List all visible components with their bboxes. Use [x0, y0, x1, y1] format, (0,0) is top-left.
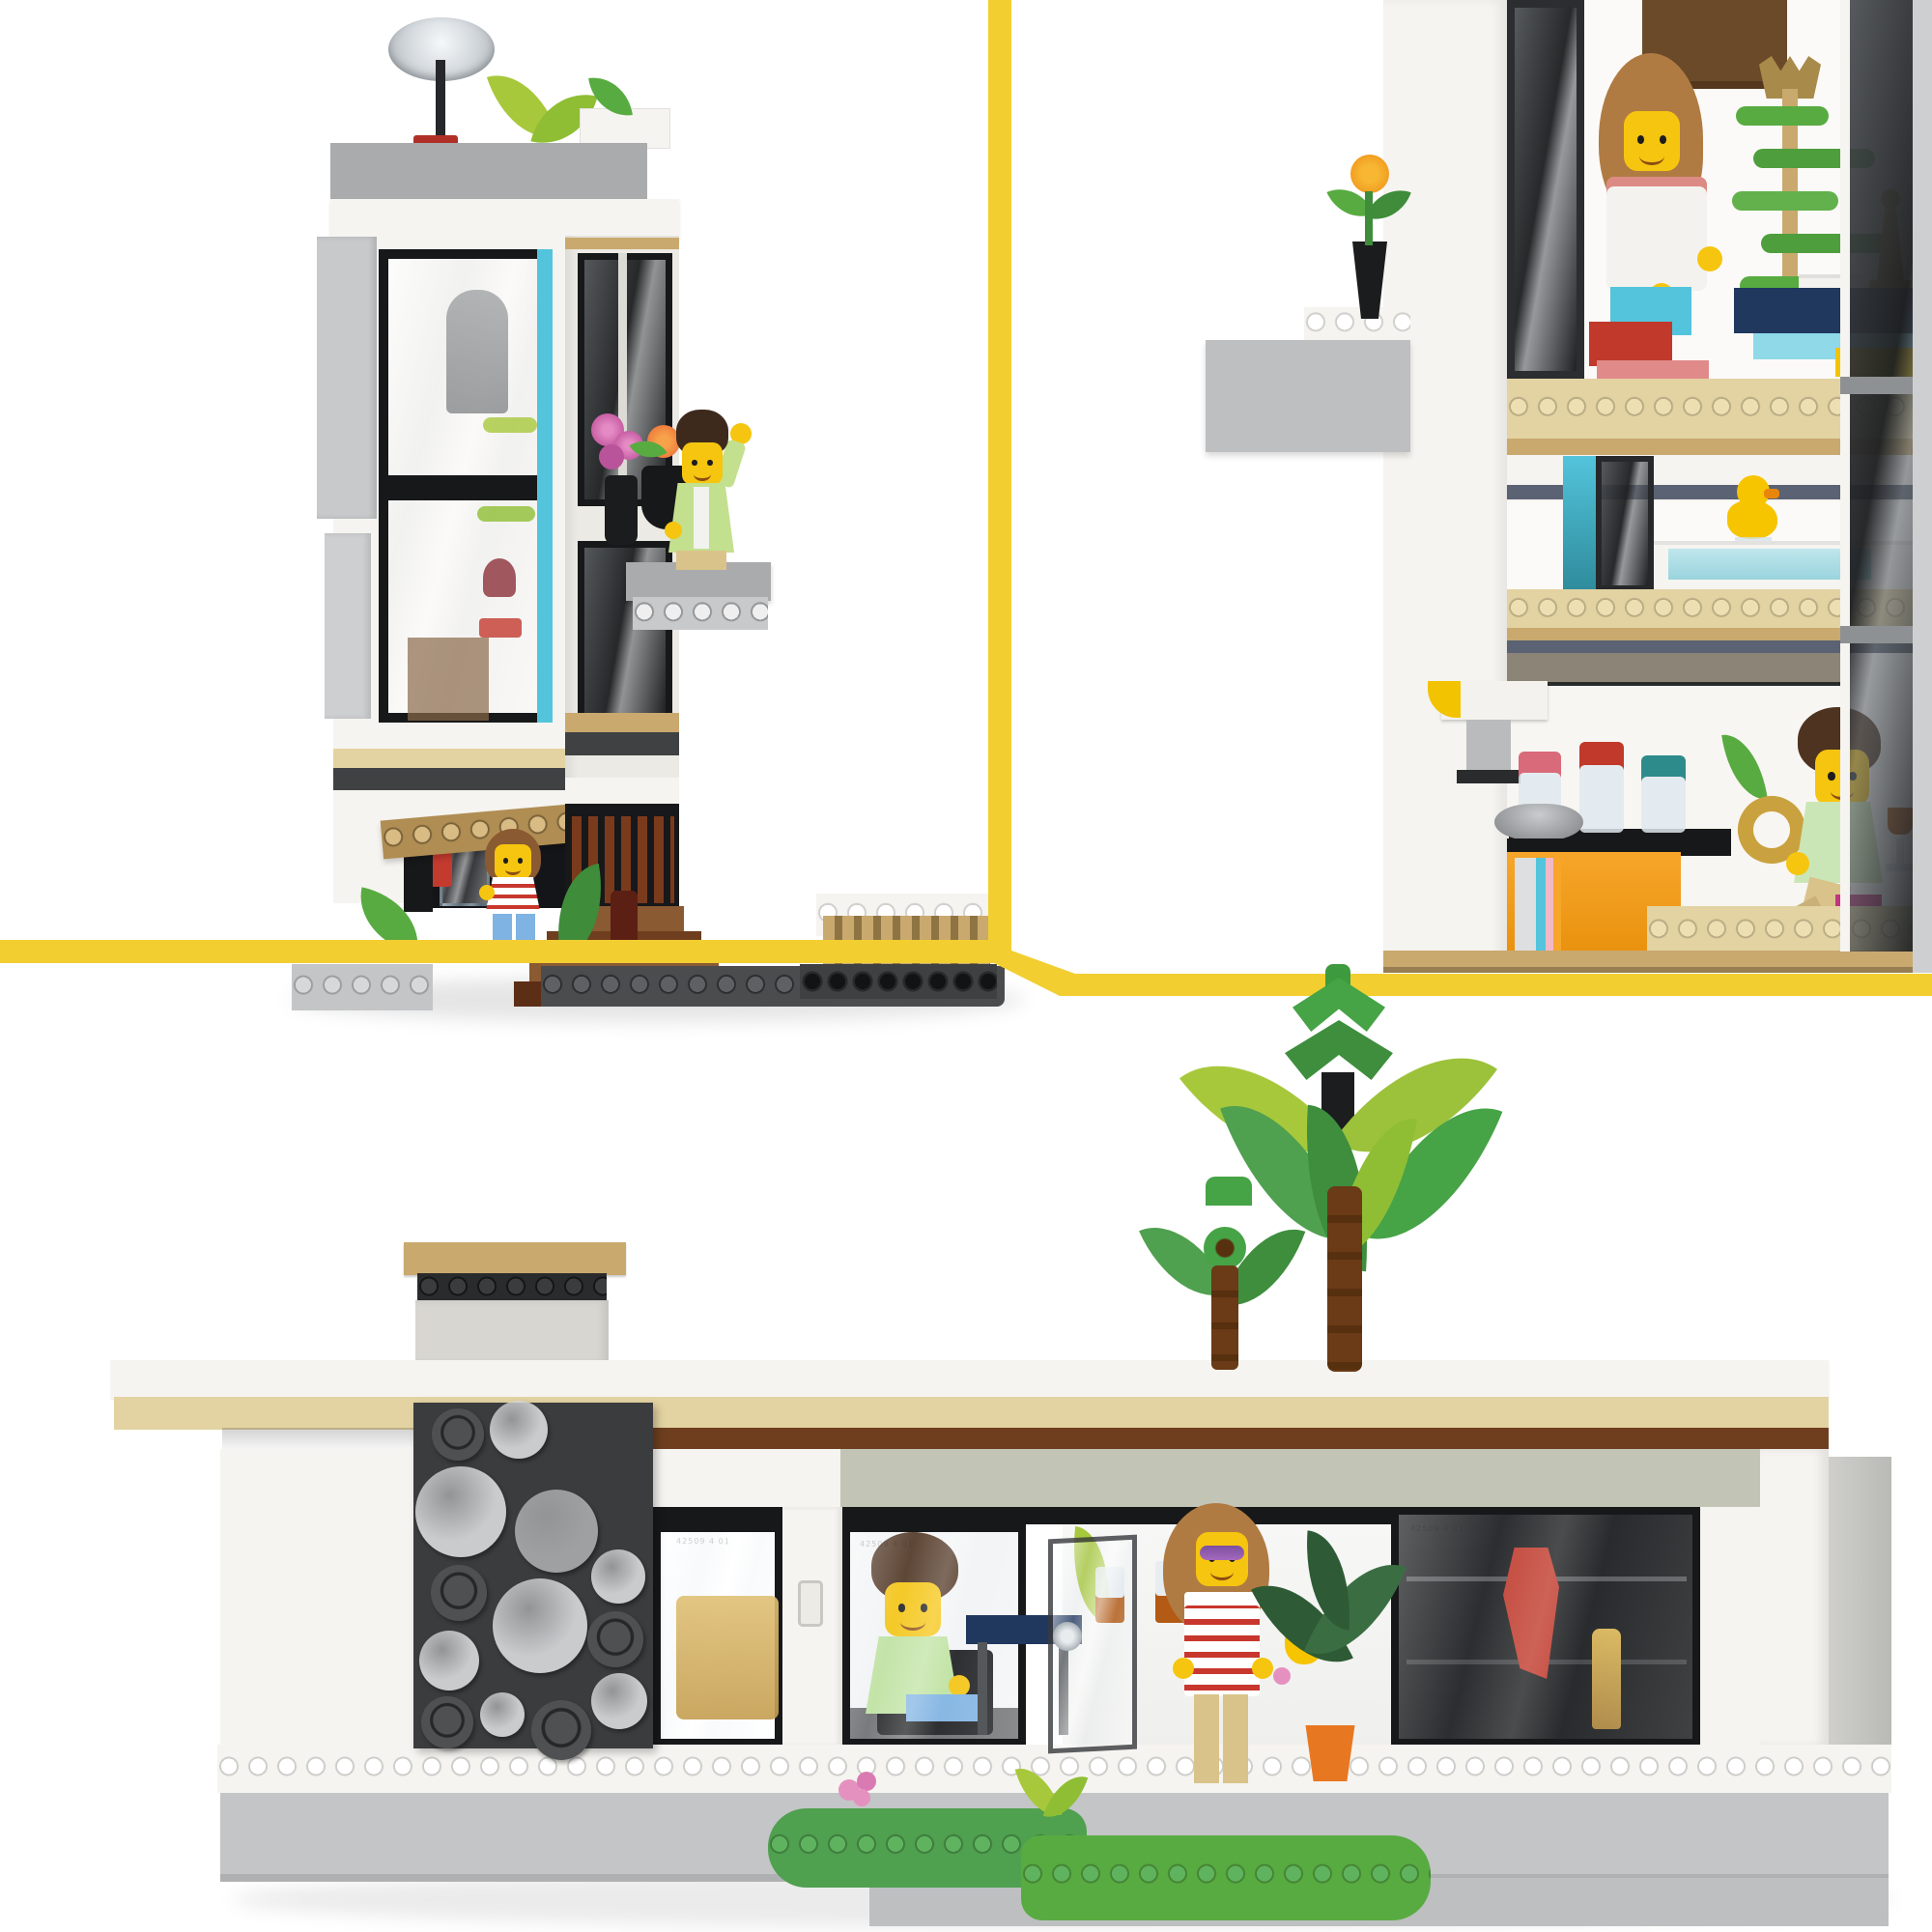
face — [1624, 111, 1680, 171]
grey-circle-tile — [531, 1700, 591, 1760]
minifig-porch-woman — [479, 829, 553, 943]
panel-tower-full-view — [0, 0, 988, 1005]
hand-icon — [1173, 1658, 1194, 1679]
small-plant-trunk — [1211, 1265, 1238, 1370]
grey-circle-tile — [591, 1673, 647, 1729]
roof-white-row — [111, 1360, 1829, 1399]
coffee-machine-tower — [1466, 720, 1511, 776]
plant-tier — [1736, 106, 1829, 126]
small-roof-plant — [1150, 1177, 1304, 1370]
grey-bowl — [1494, 804, 1583, 840]
glass-mold-mark: 42509 4 01 — [676, 1537, 730, 1546]
grey-circle-tile — [493, 1578, 587, 1673]
ledge-grey-blocks — [1206, 340, 1410, 452]
grey-circle-tile — [432, 1408, 484, 1461]
roof-shadow-left — [222, 1428, 440, 1449]
chimney-dark-row — [417, 1273, 607, 1302]
dark-red-vase — [611, 891, 638, 958]
small-plant-crown — [1206, 1177, 1252, 1206]
panel-interior-closeup — [1011, 0, 1932, 974]
bath-azure-strip — [1563, 456, 1596, 591]
technic-hole-row — [800, 964, 997, 999]
grey-circle-tile — [421, 1696, 473, 1748]
window-floor-cut — [1840, 626, 1913, 643]
door-handle — [798, 1580, 823, 1627]
grass-strip — [768, 1764, 1439, 1928]
rooftop-palm-tree — [1111, 927, 1517, 1391]
closeup-right-pillar — [1913, 0, 1932, 973]
top-floor-door-frame — [1507, 0, 1584, 379]
hand-icon — [1786, 852, 1809, 875]
door-lock-disc — [1053, 1622, 1082, 1651]
pink-bud — [1273, 1667, 1291, 1685]
glass-mold-mark: 42509 4 01 — [1410, 1524, 1464, 1533]
sunglasses-icon — [1200, 1546, 1244, 1560]
door-mullion — [782, 1507, 842, 1747]
grey-circle-tile — [515, 1490, 598, 1573]
left-end-wall — [220, 1507, 415, 1747]
pink-flower-cluster — [857, 1772, 876, 1791]
chimney-cap-tan — [404, 1242, 626, 1275]
roof-tan-fascia — [114, 1397, 1829, 1430]
pink-flower-cluster — [853, 1789, 870, 1806]
legs-tan — [1194, 1694, 1219, 1783]
torso-white — [1606, 177, 1707, 291]
chimney-block — [415, 1300, 609, 1364]
small-plant-ring — [1204, 1227, 1246, 1269]
product-image: 42509 4 01 — [0, 0, 1932, 1932]
right-side-return — [1829, 1457, 1891, 1750]
grey-circle-tile — [480, 1692, 525, 1737]
panel-bungalow: 42509 4 01 — [0, 996, 1932, 1932]
hand-icon — [479, 885, 495, 900]
orange-flower — [1350, 155, 1389, 193]
coffee-machine-drip — [1457, 770, 1520, 783]
face — [495, 844, 531, 879]
torso-striped — [1184, 1592, 1260, 1696]
cabinet-stripe-panel — [1515, 858, 1561, 954]
grey-circle-tile — [490, 1401, 548, 1459]
flower-stem — [1365, 191, 1373, 245]
circle-decor-panel — [413, 1403, 653, 1748]
orange-pot — [1302, 1725, 1358, 1781]
grey-circle-tile — [587, 1611, 643, 1667]
duck-beak — [1764, 489, 1779, 498]
hand-icon — [1697, 246, 1722, 271]
duck-body — [1727, 500, 1777, 539]
kitchen-ceiling — [1507, 653, 1840, 682]
grey-circle-tile — [431, 1565, 487, 1621]
bath-back-frame — [1596, 456, 1654, 591]
legs-jeans — [493, 914, 512, 941]
closeup-right-windows — [1840, 0, 1922, 952]
legs-jeans — [516, 914, 535, 941]
right-end-wall — [1760, 1449, 1829, 1747]
grey-circle-tile — [591, 1549, 645, 1604]
spice-jar-teal — [1641, 755, 1686, 833]
closeup-left-wall — [1383, 0, 1507, 973]
grey-circle-tile — [415, 1466, 506, 1557]
wardrobe-bay: 42509 4 01 — [1391, 1507, 1700, 1747]
plant-tier — [1732, 191, 1838, 211]
minifig-door-woman — [1155, 1503, 1275, 1785]
window-floor-cut — [1840, 377, 1913, 394]
door-plant — [1271, 1532, 1397, 1783]
grey-circle-tile — [419, 1631, 479, 1690]
ledge-white-blocks — [1304, 307, 1410, 340]
hand-icon — [1252, 1658, 1273, 1679]
spice-jar-red — [1579, 742, 1624, 833]
glass-mold-mark: 42509 4 01 — [860, 1540, 914, 1548]
palm-trunk — [1327, 1186, 1362, 1372]
rubber-duck-icon — [1727, 475, 1779, 549]
palm-crown-chevron — [1285, 1020, 1393, 1080]
table-leg — [978, 1642, 987, 1735]
right-post-white — [1700, 1507, 1760, 1747]
upper-wall-sage — [840, 1449, 1829, 1509]
grass-mound — [1021, 1835, 1431, 1920]
legs-tan — [1223, 1694, 1248, 1783]
coffee-machine-yellow — [1428, 681, 1461, 718]
glass-glare — [1399, 1515, 1692, 1739]
couch-tan — [676, 1596, 779, 1719]
